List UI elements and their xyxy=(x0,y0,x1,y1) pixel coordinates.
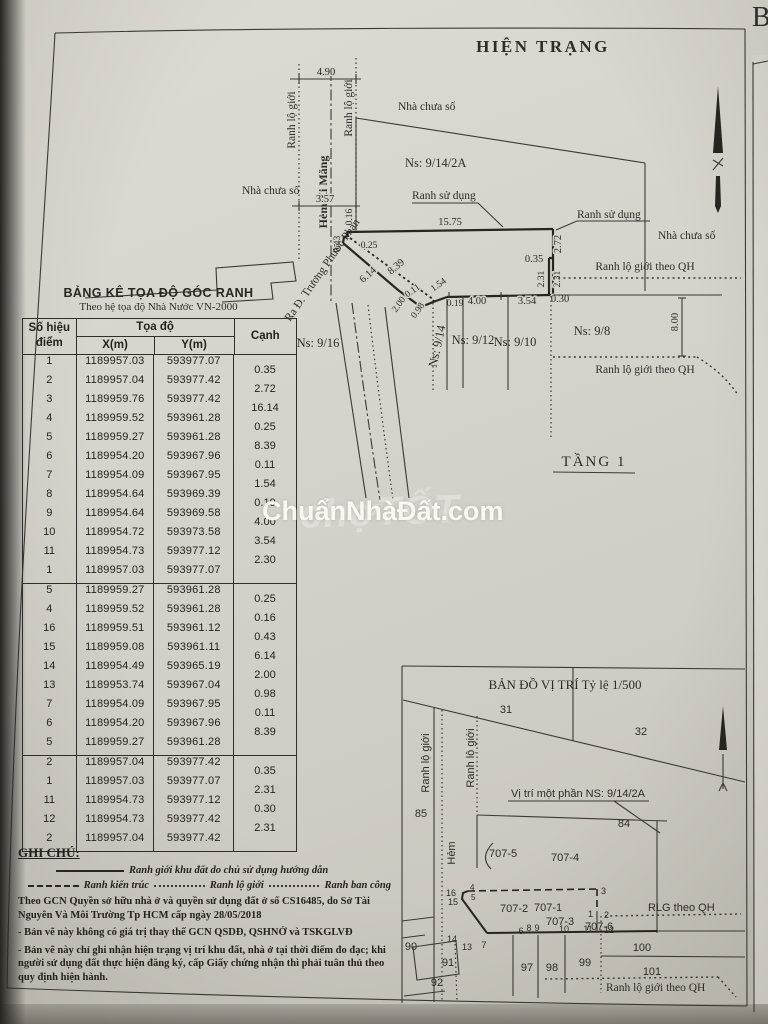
table-cell-p: 3 xyxy=(23,393,77,412)
qh-line-2 xyxy=(553,357,738,395)
dim-3-54: 3.54 xyxy=(518,296,537,307)
edge-value: 1.54 xyxy=(234,478,296,490)
map-label-rlg: RLG theo QH xyxy=(648,902,715,914)
dim-8-39: 8.39 xyxy=(386,257,407,277)
map-parcel-98: 98 xyxy=(546,962,558,974)
table-cell-y: 593961.28 xyxy=(154,412,234,431)
map-qh-dotted xyxy=(545,977,718,979)
edge-value: 3.54 xyxy=(234,535,296,547)
map-north-arrow-icon xyxy=(719,706,727,791)
table-cell-x: 1189957.03 xyxy=(77,355,154,374)
table-cell-p: 16 xyxy=(23,622,77,641)
table-cell-x: 1189959.52 xyxy=(77,603,154,622)
table-cell-y: 593977.07 xyxy=(154,564,234,583)
dim-0-35: 0.35 xyxy=(525,254,543,265)
dim-8-00: 8.00 xyxy=(670,313,681,331)
table-cell-x: 1189954.73 xyxy=(77,545,154,564)
edge-value: 0.19 xyxy=(234,497,296,509)
dim-2-31-a: 2.31 xyxy=(537,270,547,287)
table-cell-p: 11 xyxy=(23,794,77,813)
table-cell-p: 7 xyxy=(23,469,77,488)
edge-value: 4.00 xyxy=(234,516,296,528)
label-ranh-lo-gioi-left: Ranh lộ giới xyxy=(286,91,298,148)
table-cell-y: 593961.12 xyxy=(154,622,234,641)
page-title: HIỆN TRẠNG xyxy=(476,37,610,56)
table-cell-y: 593969.39 xyxy=(154,488,234,507)
table-cell-x: 1189959.51 xyxy=(77,622,154,641)
dim-4-90: 4.90 xyxy=(317,67,335,78)
dim-6-14: 6.14 xyxy=(358,264,380,285)
edge-value: 2.31 xyxy=(234,822,296,834)
table-cell-p: 8 xyxy=(23,488,77,507)
table-cell-p: 1 xyxy=(23,564,77,583)
label-ns-9-8: Ns: 9/8 xyxy=(574,324,610,338)
table-cell-x: 1189959.76 xyxy=(77,393,154,412)
map-parcel-707-5: 707-5 xyxy=(489,848,517,860)
table-cell-y: 593977.12 xyxy=(154,794,234,813)
table-cell-x: 1189954.20 xyxy=(77,717,154,736)
table-cell-x: 1189954.09 xyxy=(77,469,154,488)
label-qh-2: Ranh lộ giới theo QH xyxy=(595,364,694,376)
header-edge: Cạnh xyxy=(235,319,296,354)
notes-title: GHI CHÚ: xyxy=(18,845,396,861)
note-status: - Bản vẽ này chỉ ghi nhận hiện trạng vị … xyxy=(18,944,396,985)
table-cell-y: 593977.42 xyxy=(154,374,234,393)
map-label-vi-tri: Vị trí một phần NS: 9/14/2A xyxy=(511,788,646,800)
map-point-13: 13 xyxy=(462,942,472,952)
edge-value: 0.11 xyxy=(234,707,296,719)
map-parcel-101: 101 xyxy=(643,966,661,978)
map-point-11: 11 xyxy=(583,924,592,934)
table-cell-p: 4 xyxy=(23,603,77,622)
table-cell-p: 13 xyxy=(23,679,77,698)
edge-value: 2.00 xyxy=(234,669,296,681)
table-header: Số hiệu điểm Tọa độ X(m) Y(m) Cạnh xyxy=(23,319,296,355)
table-cell-p: 1 xyxy=(23,775,77,794)
table-cell-x: 1189959.27 xyxy=(77,736,154,755)
label-ns-9-10: Ns: 9/10 xyxy=(494,335,537,349)
north-arrow-icon xyxy=(713,86,723,213)
map-rlg-dotted xyxy=(605,914,741,916)
dotted-line-swatch-2 xyxy=(269,885,320,887)
table-cell-p: 12 xyxy=(23,813,77,832)
table-cell-y: 593977.07 xyxy=(154,355,234,374)
table-cell-y: 593977.42 xyxy=(154,756,234,775)
map-parcel-99: 99 xyxy=(579,957,591,969)
table-cell-y: 593977.07 xyxy=(154,775,234,794)
label-nha-chua-so-right: Nhà chưa số xyxy=(658,229,716,242)
map-label-hem: Hẻm xyxy=(446,841,458,864)
edge-value: 8.39 xyxy=(234,440,296,452)
map-qh-dotted-curve xyxy=(718,977,736,997)
map-label-qh: Ranh lộ giới theo QH xyxy=(606,982,705,994)
dim-3-57: 3.57 xyxy=(316,194,334,205)
table-cell-y: 593965.19 xyxy=(154,660,234,679)
table-block: 21189957.04593977.4211189957.03593977.07… xyxy=(23,756,296,851)
map-point-8: 8 xyxy=(526,923,531,933)
table-cell-y: 593977.42 xyxy=(154,393,234,412)
label-nha-chua-so-top: Nhà chưa số xyxy=(398,100,456,113)
coord-table-blocks: 11189957.03593977.0721189957.04593977.42… xyxy=(23,355,296,851)
coordinate-table: Số hiệu điểm Tọa độ X(m) Y(m) Cạnh 11189… xyxy=(22,318,297,852)
table-cell-y: 593969.58 xyxy=(154,507,234,526)
map-parcel-707-1: 707-1 xyxy=(534,902,562,914)
edge-value: 0.16 xyxy=(234,612,296,624)
edge-value: 0.98 xyxy=(234,688,296,700)
table-cell-x: 1189954.49 xyxy=(77,660,154,679)
table-cell-x: 1189954.64 xyxy=(77,488,154,507)
table-cell-p: 5 xyxy=(23,584,77,603)
note-gcn: Theo GCN Quyền sở hữu nhà ở và quyền sử … xyxy=(18,895,396,922)
legend-boundary-label: Ranh giới khu đất do chủ sử dụng hướng d… xyxy=(129,865,328,876)
map-title: BẢN ĐỒ VỊ TRÍ Tỷ lệ 1/500 xyxy=(488,677,641,692)
map-point-1: 1 xyxy=(588,909,593,919)
table-cell-x: 1189957.03 xyxy=(77,775,154,794)
table-cell-x: 1189953.74 xyxy=(77,679,154,698)
note-no-replace: - Bản vẽ này không có giá trị thay thế G… xyxy=(18,926,396,940)
table-cell-p: 5 xyxy=(23,736,77,755)
edge-value: 16.14 xyxy=(234,402,296,414)
table-cell-p: 4 xyxy=(23,412,77,431)
table-cell-y: 593967.96 xyxy=(154,450,234,469)
table-cell-p: 15 xyxy=(23,641,77,660)
map-point-6: 6 xyxy=(518,926,523,936)
edge-column: 0.352.310.302.31 xyxy=(234,756,296,851)
map-point-3: 3 xyxy=(601,886,606,896)
legend-balcony-label: Ranh ban công xyxy=(324,880,391,891)
map-parcel-85: 85 xyxy=(415,808,427,820)
map-point-7: 7 xyxy=(481,940,486,950)
leader-2 xyxy=(556,221,650,230)
table-cell-x: 1189959.08 xyxy=(77,641,154,660)
map-point-9: 9 xyxy=(534,923,539,933)
edge-column: 0.352.7216.140.258.390.111.540.194.003.5… xyxy=(234,355,296,583)
solid-line-swatch xyxy=(56,870,124,872)
table-cell-y: 593961.28 xyxy=(154,431,234,450)
edge-value: 0.11 xyxy=(234,459,296,471)
edge-value: 0.35 xyxy=(234,765,296,777)
edge-value: 0.25 xyxy=(234,593,296,605)
table-cell-x: 1189959.52 xyxy=(77,412,154,431)
header-coords: Tọa độ xyxy=(77,319,234,337)
label-qh-1: Ranh lộ giới theo QH xyxy=(595,261,694,273)
table-cell-y: 593967.04 xyxy=(154,679,234,698)
map-point-10: 10 xyxy=(559,924,569,934)
dim-0-11: 0.11 xyxy=(403,282,422,300)
legend-arch-label: Ranh kiến trúc xyxy=(84,880,149,891)
edge-value: 2.31 xyxy=(234,784,296,796)
dim-2-00: 2.00 xyxy=(390,295,408,315)
map-label-ranh-lo-gioi-1: Ranh lộ giới xyxy=(420,733,432,792)
table-block: 51189959.27593961.2841189959.52593961.28… xyxy=(23,584,296,756)
table-cell-p: 1 xyxy=(23,355,77,374)
edge-value: 6.14 xyxy=(234,650,296,662)
dashed-line-swatch xyxy=(28,885,79,887)
table-cell-y: 593967.96 xyxy=(154,717,234,736)
label-hem-xi-mang: Hẻm Xi Măng xyxy=(316,156,330,229)
table-cell-x: 1189954.20 xyxy=(77,450,154,469)
label-nha-chua-so-left: Nhà chưa số xyxy=(242,184,300,197)
label-ns-9-14: Ns: 9/14 xyxy=(426,323,449,368)
corner-letter: B xyxy=(752,2,768,33)
floor-label-underline xyxy=(553,472,635,473)
map-point-2: 2 xyxy=(604,910,609,920)
table-cell-x: 1189957.04 xyxy=(77,374,154,393)
table-cell-x: 1189959.27 xyxy=(77,584,154,603)
table-cell-p: 2 xyxy=(23,756,77,775)
table-cell-y: 593977.42 xyxy=(154,813,234,832)
table-title: BẢNG KÊ TỌA ĐỘ GÓC RANH xyxy=(22,286,295,300)
table-cell-x: 1189954.09 xyxy=(77,698,154,717)
dim-15-75: 15.75 xyxy=(438,217,462,228)
map-parcel-91: 91 xyxy=(442,957,454,969)
floor-label: TẦNG 1 xyxy=(562,453,627,470)
map-parcel-97: 97 xyxy=(521,962,533,974)
table-cell-y: 593967.95 xyxy=(154,698,234,717)
legend-row-label: Ranh lộ giới xyxy=(210,880,264,891)
table-cell-y: 593977.12 xyxy=(154,545,234,564)
table-cell-x: 1189954.72 xyxy=(77,526,154,545)
header-x: X(m) xyxy=(77,337,155,354)
map-parcel-32: 32 xyxy=(635,726,647,738)
road-south-lines xyxy=(336,303,409,500)
dim-0-19: 0.19 xyxy=(447,299,464,309)
map-point-4: 4 xyxy=(470,883,475,892)
table-cell-y: 593973.58 xyxy=(154,526,234,545)
table-cell-x: 1189957.03 xyxy=(77,564,154,583)
table-cell-y: 593961.28 xyxy=(154,736,234,755)
map-parcel-92: 92 xyxy=(431,977,443,989)
map-point-5: 5 xyxy=(471,893,476,902)
map-parcel-90: 90 xyxy=(405,941,417,953)
table-cell-p: 11 xyxy=(23,545,77,564)
edge-value: 8.39 xyxy=(234,726,296,738)
table-cell-x: 1189957.04 xyxy=(77,756,154,775)
table-cell-p: 2 xyxy=(23,374,77,393)
table-cell-x: 1189954.73 xyxy=(77,794,154,813)
table-cell-p: 5 xyxy=(23,431,77,450)
table-cell-y: 593967.95 xyxy=(154,469,234,488)
table-cell-p: 7 xyxy=(23,698,77,717)
label-ns-9-16: Ns: 9/16 xyxy=(297,336,340,350)
table-block: 11189957.03593977.0721189957.04593977.42… xyxy=(23,355,296,584)
dim-0-25: 0.25 xyxy=(361,241,378,251)
table-subtitle: Theo hệ tọa độ Nhà Nước VN-2000 xyxy=(22,301,295,313)
map-label-ranh-lo-gioi-2: Ranh lộ giới xyxy=(465,728,477,787)
table-cell-p: 6 xyxy=(23,450,77,469)
map-parcel-100: 100 xyxy=(633,942,651,954)
label-ns-9-14-2a: Ns: 9/14/2A xyxy=(405,156,466,170)
dotted-line-swatch-1 xyxy=(154,885,205,887)
table-cell-x: 1189959.27 xyxy=(77,431,154,450)
map-parcel-31: 31 xyxy=(500,704,512,716)
edge-value: 2.72 xyxy=(234,383,296,395)
edge-value: 0.30 xyxy=(234,803,296,815)
edge-column: 0.250.160.436.142.000.980.118.39 xyxy=(234,584,296,755)
adjacent-page-edge xyxy=(753,61,768,1012)
table-cell-p: 14 xyxy=(23,660,77,679)
table-cell-y: 593961.11 xyxy=(154,641,234,660)
legend-line-1: Ranh giới khu đất do chủ sử dụng hướng d… xyxy=(18,865,396,876)
header-point: Số hiệu điểm xyxy=(23,319,77,354)
map-point-15: 15 xyxy=(448,897,458,907)
table-cell-y: 593961.28 xyxy=(154,603,234,622)
dim-1-54: 1.54 xyxy=(429,276,449,294)
map-parcel-707-4: 707-4 xyxy=(551,852,579,864)
table-cell-p: 9 xyxy=(23,507,77,526)
edge-value: 0.35 xyxy=(234,364,296,376)
table-cell-p: 6 xyxy=(23,717,77,736)
table-cell-y: 593961.28 xyxy=(154,584,234,603)
label-ns-9-12: Ns: 9/12 xyxy=(452,333,495,347)
dim-0-98: 0.98 xyxy=(409,301,427,321)
table-cell-x: 1189954.73 xyxy=(77,813,154,832)
map-parcel-707-2: 707-2 xyxy=(500,903,528,915)
edge-value: 2.30 xyxy=(234,554,296,566)
label-ranh-lo-gioi-right: Ranh lộ giới xyxy=(343,79,355,136)
notes-section: GHI CHÚ: Ranh giới khu đất do chủ sử dụn… xyxy=(18,845,396,984)
legend-line-2: Ranh kiến trúc Ranh lộ giới Ranh ban côn… xyxy=(18,880,396,891)
header-y: Y(m) xyxy=(155,337,234,354)
dim-2-72: 2.72 xyxy=(553,235,564,253)
dim-0-30: 0.30 xyxy=(551,294,569,305)
edge-value: 0.25 xyxy=(234,421,296,433)
table-cell-x: 1189954.64 xyxy=(77,507,154,526)
edge-value: 0.43 xyxy=(234,631,296,643)
map-point-numbers: 16 15 4 5 3 1 2 6 8 9 10 11 12 14 13 7 xyxy=(446,883,614,952)
dim-2-31-b: 2.31 xyxy=(553,270,563,287)
label-ranh-su-dung-2: Ranh sử dụng xyxy=(577,209,641,221)
label-ranh-su-dung-1: Ranh sử dụng xyxy=(412,190,476,202)
map-point-12: 12 xyxy=(604,925,614,935)
dim-4-00: 4.00 xyxy=(468,296,486,307)
table-cell-p: 10 xyxy=(23,526,77,545)
